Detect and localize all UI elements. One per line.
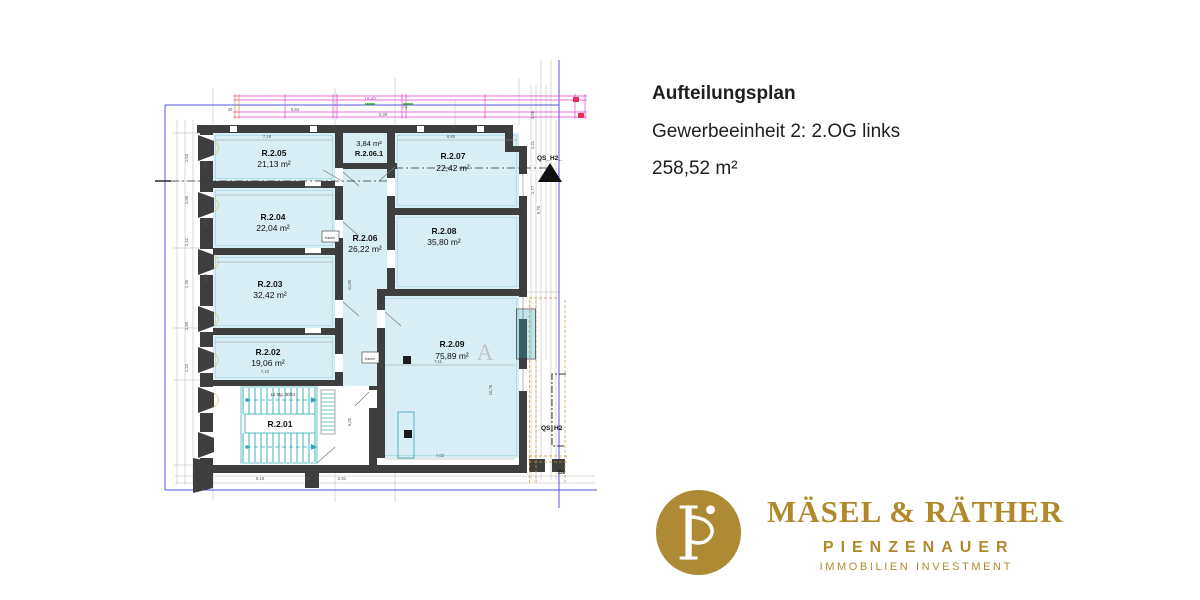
dim-label: 1,86 <box>184 195 189 204</box>
brand-name: MÄSEL & RÄTHER <box>767 496 1063 527</box>
dim-label: 2,23 <box>203 217 208 226</box>
dim-label: 6,84 <box>291 107 300 112</box>
brand-text: MÄSEL & RÄTHER PIENZENAUER IMMOBILIEN IN… <box>767 489 1063 573</box>
room-id: R.2.06 <box>352 233 377 243</box>
room-id: R.2.03 <box>257 279 282 289</box>
dim-label: 1,36 <box>184 279 189 288</box>
dim-label: 40 <box>306 476 311 481</box>
room-id: R.2.07 <box>440 151 465 161</box>
floor-plan-drawing: R.2.05 21,13 m² R.2.04 22,04 m² R.2.03 3… <box>155 60 605 510</box>
room-area: 19,06 m² <box>251 358 285 368</box>
room-id: R.2.06.1 <box>355 149 383 158</box>
dim-label: 1,77 <box>530 185 535 194</box>
dim-label: 1,53 <box>184 153 189 162</box>
room-area: 22,42 m² <box>436 163 470 173</box>
room-area: 22,04 m² <box>256 223 290 233</box>
dim-label: 2,50 <box>203 273 208 282</box>
page-title: Aufteilungsplan <box>652 83 900 105</box>
total-area: 258,52 m² <box>652 158 900 180</box>
brand-logo-icon <box>655 489 742 576</box>
room-area: 32,42 m² <box>253 290 287 300</box>
room-area: 3,84 m² <box>356 139 382 148</box>
dim-label: 2,81 <box>338 476 347 481</box>
dim-label: 2,39 <box>379 112 388 117</box>
dim-label: 1,66 <box>530 110 535 119</box>
room-id: R.2.01 <box>267 419 292 429</box>
plan-header: Aufteilungsplan Gewerbeeinheit 2: 2.OG l… <box>652 83 900 195</box>
dim-label: 6,18 <box>256 476 265 481</box>
room-id: R.2.08 <box>431 226 456 236</box>
dim-label: 1,41 <box>184 237 189 246</box>
dim-label: 7,18 <box>263 134 272 139</box>
kamin-label: Kamin <box>325 236 335 240</box>
dim-label: 7,11 <box>434 359 443 364</box>
expose-page: R.2.05 21,13 m² R.2.04 22,04 m² R.2.03 3… <box>0 0 1200 600</box>
dim-label: 20 <box>228 107 233 112</box>
dim-label: 5,00 <box>347 417 352 426</box>
room-id: R.2.05 <box>261 148 286 158</box>
dim-label: 11,80 <box>347 279 352 290</box>
section-label-top: QS_H2_ <box>537 155 562 162</box>
dim-label: 18,40 <box>364 96 376 101</box>
secondary-stair <box>321 390 335 434</box>
brand-block: MÄSEL & RÄTHER PIENZENAUER IMMOBILIEN IN… <box>655 489 1063 576</box>
dim-label: 2,87 <box>203 160 208 169</box>
plan-watermark-letter: A <box>477 340 494 365</box>
section-label-right: QS_H2 <box>541 425 563 432</box>
brand-tagline: IMMOBILIEN INVESTMENT <box>818 562 1013 573</box>
dim-label: 1,22 <box>184 363 189 372</box>
dim-label: 7,02 <box>436 453 445 458</box>
room-id: R.2.04 <box>260 212 285 222</box>
room-area: 26,22 m² <box>348 244 382 254</box>
kamin-label: Kamin <box>365 357 375 361</box>
ds-label: Ds <box>558 470 565 476</box>
dim-label: 10,76 <box>488 384 493 395</box>
dim-label: 73 <box>403 104 408 109</box>
floor-plan: R.2.05 21,13 m² R.2.04 22,04 m² R.2.03 3… <box>155 60 605 510</box>
dim-label: 1,21 <box>530 140 535 149</box>
dim-label: 6,80 <box>447 134 456 139</box>
room-area: 21,13 m² <box>257 159 291 169</box>
room-id: R.2.02 <box>255 347 280 357</box>
brand-division: PIENZENAUER <box>816 540 1015 556</box>
dim-label: 7,10 <box>261 369 270 374</box>
unit-subtitle: Gewerbeeinheit 2: 2.OG links <box>652 121 900 143</box>
dim-label: 6,70 <box>536 205 541 214</box>
section-triangle <box>538 163 562 182</box>
stair-note: 16 Stg. 30/14 <box>271 392 297 397</box>
room-id: R.2.09 <box>439 339 464 349</box>
dim-label: 1,80 <box>184 321 189 330</box>
room-area: 35,80 m² <box>427 237 461 247</box>
